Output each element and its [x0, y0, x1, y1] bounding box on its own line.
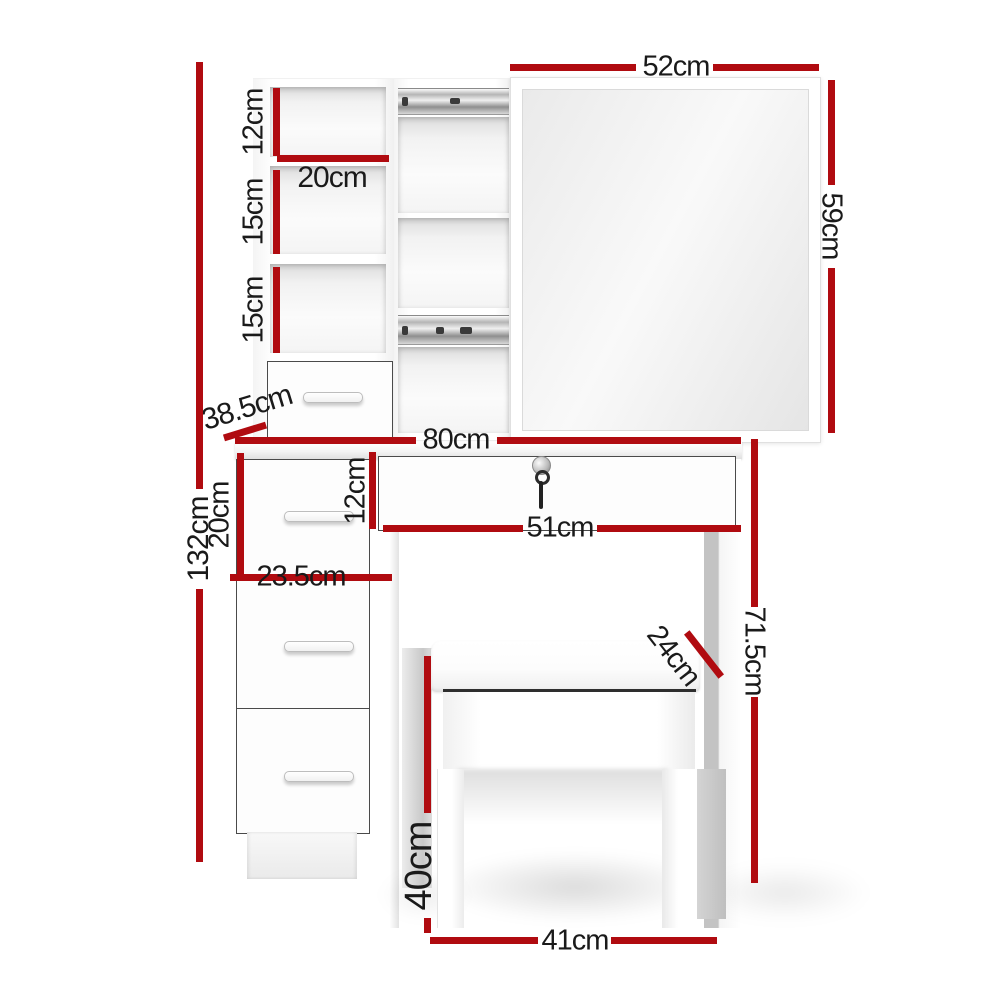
- dim-total-height-line-bottom: [196, 589, 203, 862]
- dim-stool-width-label: 41cm: [542, 927, 609, 956]
- dim-stool-width-line-right: [611, 937, 717, 944]
- dim-lower-shelf-label: 15cm: [240, 277, 269, 344]
- dim-mirror-width-label: 52cm: [643, 53, 710, 82]
- dim-desk-width-line-left: [235, 437, 416, 444]
- tower-small-drawer-handle: [303, 392, 363, 403]
- stool-front-right-leg: [662, 769, 697, 928]
- table-leg-left: [378, 529, 399, 928]
- dim-middle-shelf-line: [273, 170, 280, 254]
- dim-side-drawer-height-label: 20cm: [206, 482, 235, 549]
- stool-front-left-leg: [437, 769, 464, 928]
- dim-stool-height-line-top: [424, 656, 431, 813]
- dim-top-drawer-width-label: 51cm: [527, 514, 594, 543]
- dim-desk-height-line-top: [751, 439, 758, 607]
- stool-underside-shade: [458, 769, 668, 824]
- stool-box: [443, 692, 695, 769]
- slide-detail: [436, 327, 444, 334]
- dim-lower-shelf-line: [273, 267, 280, 353]
- cabinet-divider: [237, 708, 369, 709]
- dim-mirror-width-line-right: [713, 64, 819, 71]
- dim-mirror-height-label: 59cm: [817, 193, 846, 260]
- dim-stool-height-line-bottom: [424, 918, 431, 933]
- drawer-slide-bottom: [398, 315, 509, 345]
- dim-total-height-line-top: [196, 62, 203, 489]
- shelf-opening-top: [270, 87, 386, 157]
- drawer-slide-top: [398, 88, 509, 115]
- dim-mirror-height-line-top: [828, 80, 835, 185]
- cabinet-drawer-handle-3: [284, 771, 354, 782]
- mirror: [510, 77, 821, 443]
- dim-mirror-height-line-bottom: [828, 268, 835, 433]
- dim-top-shelf-line: [273, 88, 280, 156]
- hutch-opening-lower: [398, 347, 509, 433]
- dim-desk-width-line-right: [497, 437, 741, 444]
- slide-detail: [402, 326, 408, 335]
- dim-middle-shelf-label: 15cm: [240, 179, 269, 246]
- key-blade: [539, 481, 543, 509]
- dim-stool-height-label: 40cm: [400, 822, 438, 911]
- mirror-glass: [522, 89, 809, 431]
- dim-top-shelf-label: 12cm: [240, 89, 269, 156]
- dim-top-drawer-width-line-left: [383, 525, 523, 532]
- slide-detail: [450, 98, 460, 104]
- dim-stool-width-line-left: [430, 937, 538, 944]
- hutch-opening-top: [398, 117, 509, 213]
- cabinet-drawer-handle-2: [284, 641, 354, 652]
- dim-shelf-width-label: 20cm: [297, 163, 366, 193]
- dim-desk-height-line-bottom: [751, 697, 758, 883]
- shelf-opening-lower: [270, 264, 386, 353]
- dimension-diagram: 52cm 59cm 12cm 20cm 15cm 15cm 38.5cm 80c…: [0, 0, 1000, 1000]
- stool-rear-right-leg: [694, 769, 726, 919]
- cabinet-kickboard: [247, 832, 357, 879]
- dim-top-drawer-width-line-right: [597, 525, 741, 532]
- slide-detail: [402, 97, 408, 106]
- dim-mirror-width-line-left: [510, 64, 636, 71]
- dim-top-drawer-height-label: 12cm: [342, 458, 371, 525]
- dim-side-drawer-height-line: [237, 453, 244, 577]
- slide-detail: [460, 327, 472, 334]
- dim-desk-height-label: 71.5cm: [740, 606, 769, 695]
- dim-desk-width-label: 80cm: [423, 426, 490, 455]
- hutch-opening-middle: [398, 218, 509, 308]
- dim-side-drawer-width-label: 23.5cm: [256, 563, 345, 592]
